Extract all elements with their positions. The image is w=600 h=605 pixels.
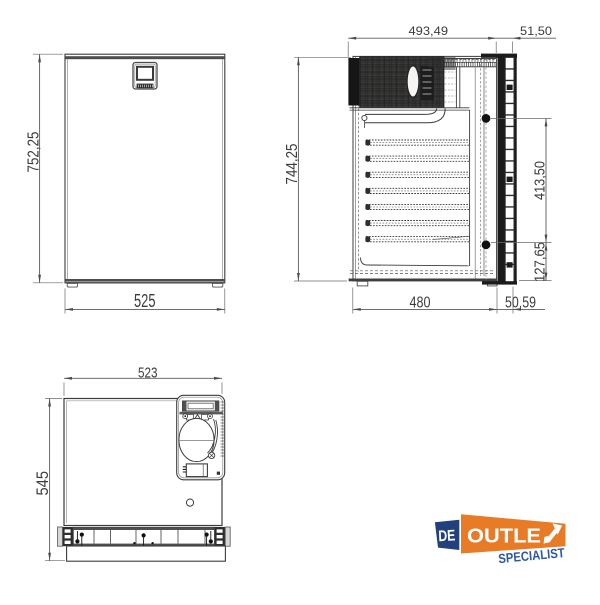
svg-text:744,25: 744,25 <box>284 143 301 184</box>
svg-text:523: 523 <box>138 365 158 381</box>
svg-text:545: 545 <box>34 471 52 496</box>
svg-text:493,49: 493,49 <box>409 24 449 38</box>
svg-text:752,25: 752,25 <box>26 131 43 172</box>
svg-text:127,65: 127,65 <box>532 242 549 282</box>
svg-text:480: 480 <box>410 295 431 312</box>
svg-text:51,50: 51,50 <box>520 24 552 38</box>
svg-text:OUTLE: OUTLE <box>467 525 541 547</box>
svg-text:413,50: 413,50 <box>532 161 549 200</box>
svg-text:525: 525 <box>134 290 156 311</box>
svg-text:50,59: 50,59 <box>505 295 536 312</box>
svg-text:DE: DE <box>438 527 456 545</box>
